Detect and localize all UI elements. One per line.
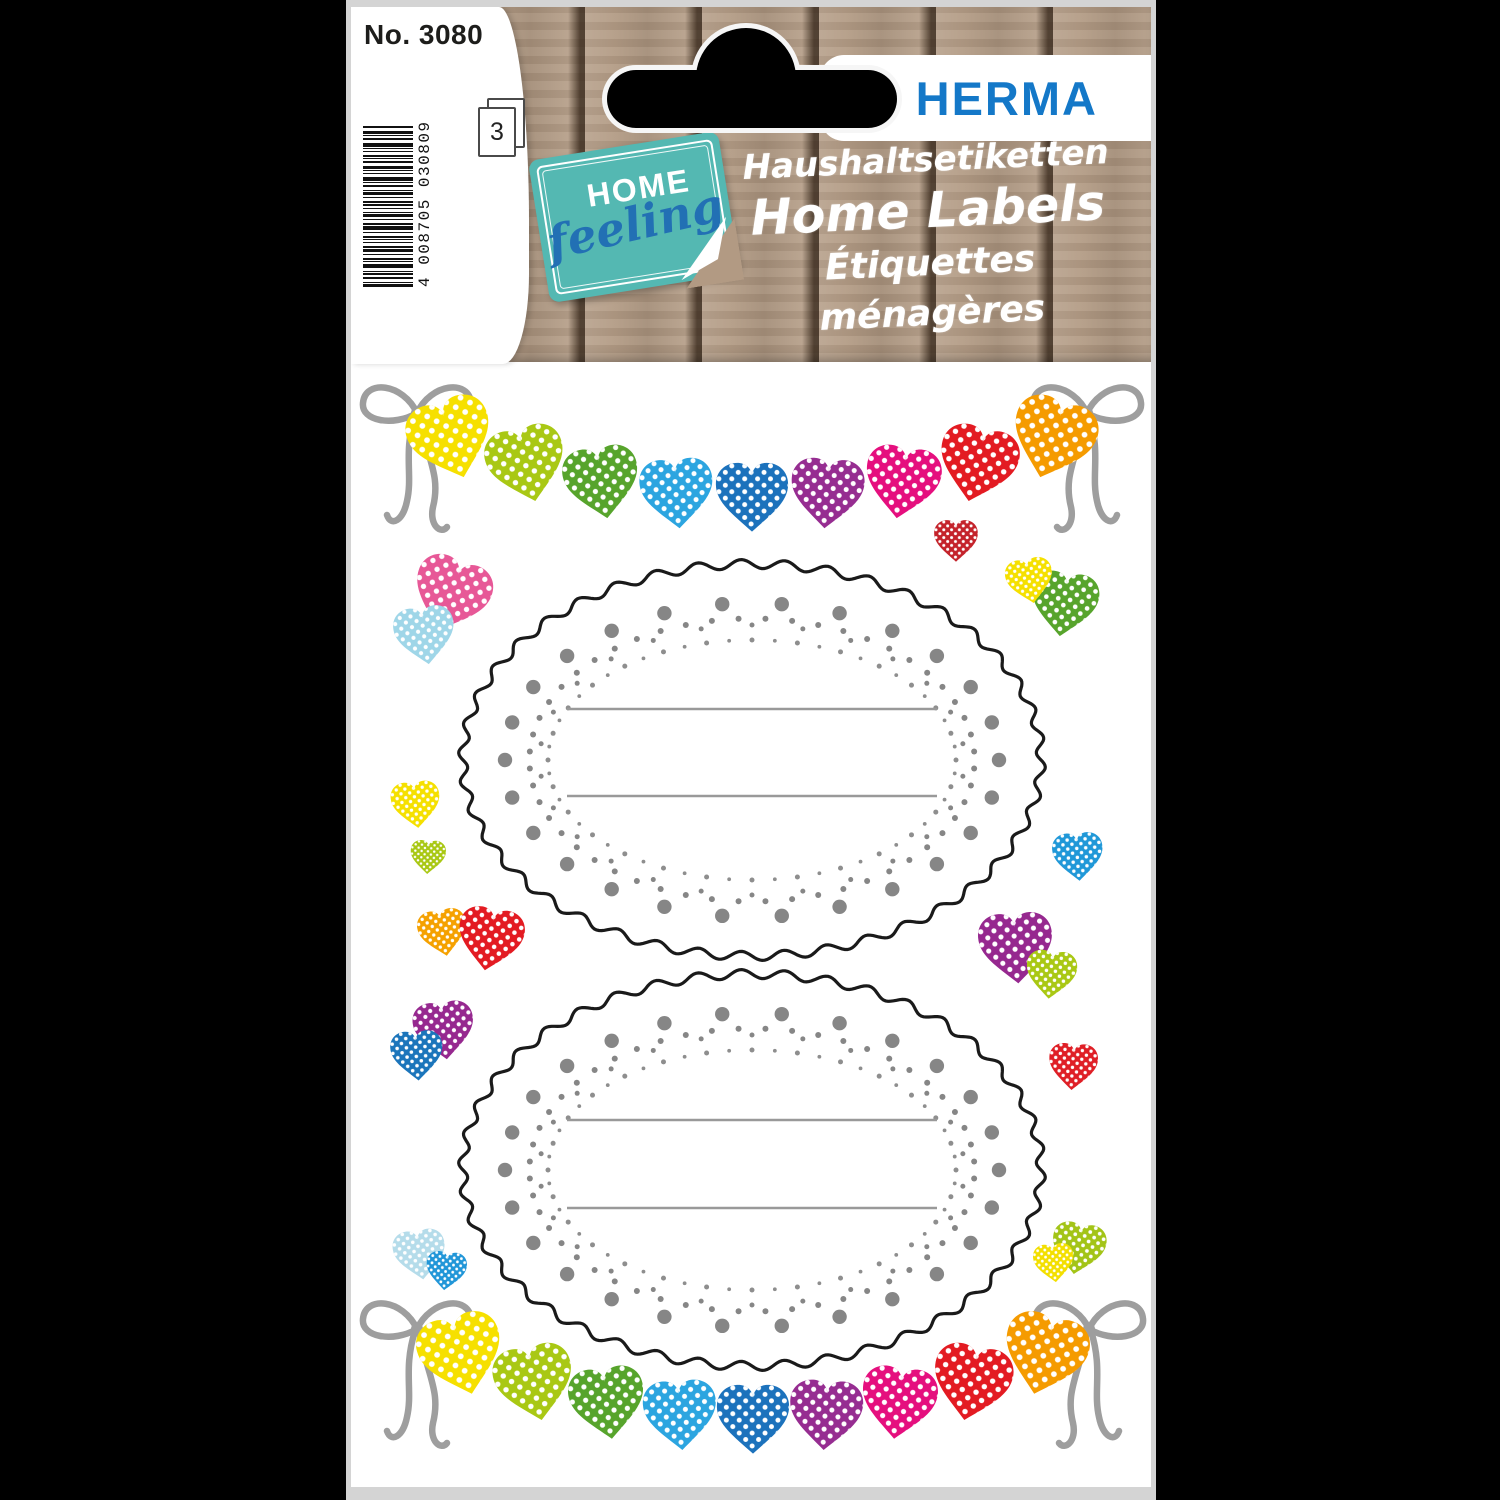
heart-sticker	[934, 520, 978, 562]
heart-sticker	[1047, 1042, 1099, 1092]
product-titles: Haushaltsetiketten Home Labels Étiquette…	[715, 128, 1143, 348]
heart-sticker	[638, 456, 716, 531]
heart-sticker	[410, 839, 447, 874]
title-french: Étiquettes ménagères	[719, 230, 1143, 348]
heart-sticker	[860, 441, 945, 523]
heart-sticker	[424, 1250, 468, 1292]
heart-sticker	[488, 1339, 580, 1428]
oval-label	[459, 970, 1046, 1371]
barcode: 4 008705 030809	[363, 98, 437, 287]
product-screenshot: { "header": { "product_number": "No. 308…	[0, 0, 1500, 1500]
heart-sticker	[926, 1339, 1018, 1428]
heart-sticker	[391, 603, 459, 668]
barcode-bars	[363, 98, 413, 287]
page-front-icon: 3	[478, 107, 516, 157]
heart-sticker	[716, 463, 788, 532]
sheet-count-icon: 3	[478, 98, 530, 156]
heart-sticker	[1024, 948, 1079, 1001]
heart-sticker	[559, 441, 644, 523]
heart-sticker	[479, 419, 573, 510]
heart-sticker	[389, 779, 442, 830]
brand-name: HERMA	[916, 71, 1098, 126]
info-card: No. 3080 4 008705 030809 3	[351, 7, 529, 364]
heart-sticker	[930, 419, 1024, 510]
heart-sticker	[1051, 831, 1105, 882]
heart-sticker	[787, 1378, 864, 1452]
heart-sticker	[453, 903, 528, 976]
product-package: ✱ HERMA Haushaltsetiketten Home Labels É…	[346, 0, 1156, 1500]
oval-label	[459, 560, 1046, 961]
sticker-sheet	[351, 362, 1151, 1487]
sheet-count: 3	[490, 118, 504, 147]
euro-hanger-hole	[607, 70, 897, 128]
heart-sticker	[389, 1029, 444, 1082]
package-face: ✱ HERMA Haushaltsetiketten Home Labels É…	[351, 7, 1151, 1487]
heart-sticker	[788, 456, 866, 531]
product-number: No. 3080	[364, 19, 483, 51]
barcode-digits: 4 008705 030809	[416, 98, 434, 287]
heart-sticker	[717, 1385, 789, 1454]
heart-sticker	[857, 1363, 941, 1444]
wood-header: ✱ HERMA Haushaltsetiketten Home Labels É…	[351, 7, 1151, 362]
home-feeling-badge: HOME feeling	[528, 131, 740, 303]
heart-sticker	[565, 1363, 649, 1444]
heart-sticker	[641, 1378, 718, 1452]
heart-sticker	[1032, 1242, 1076, 1284]
